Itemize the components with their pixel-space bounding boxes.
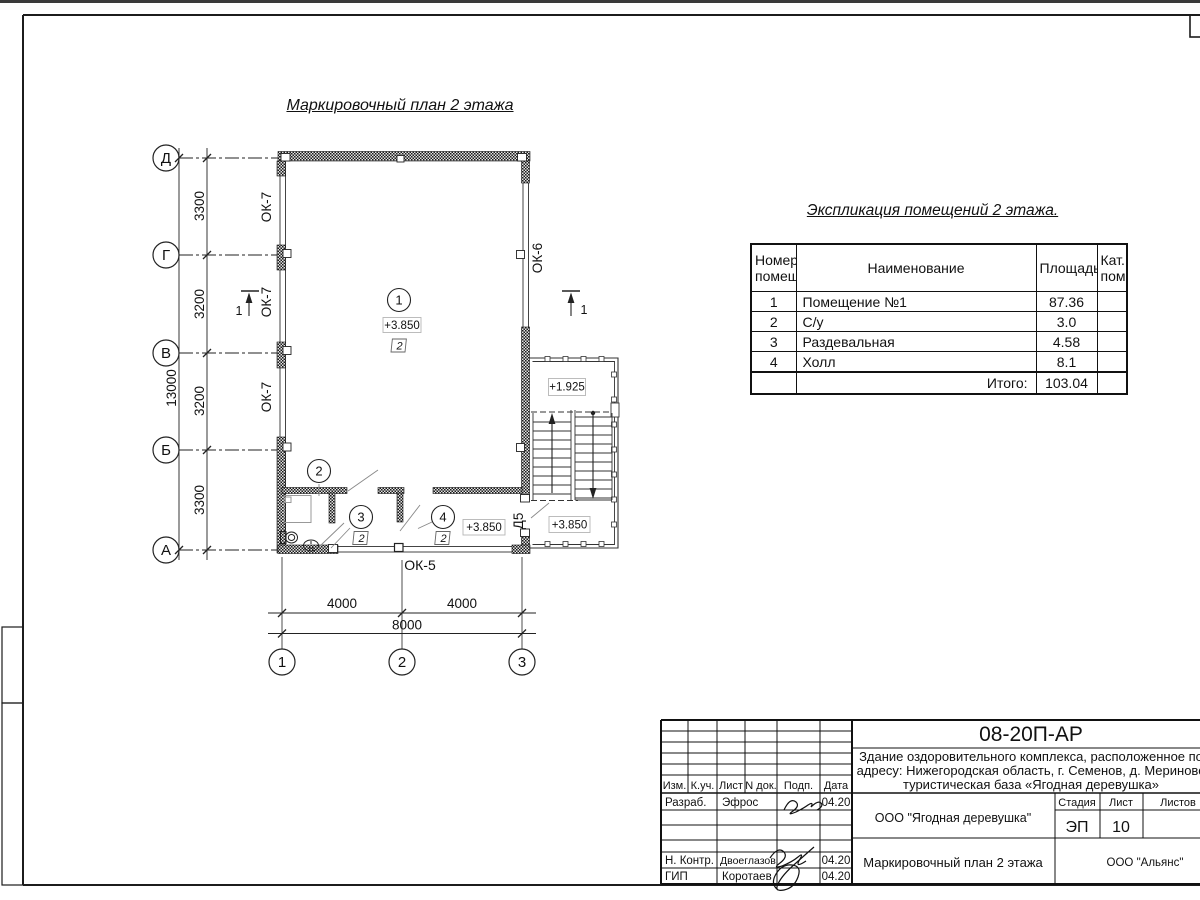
svg-text:3300: 3300 — [192, 191, 207, 221]
section-mark-label: 1 — [581, 303, 588, 317]
section-mark-label: 1 — [236, 304, 243, 318]
svg-text:Б: Б — [161, 442, 171, 459]
room-number: 2 — [315, 464, 322, 479]
corner-stamp-box — [1190, 15, 1200, 37]
svg-text:Д: Д — [161, 150, 171, 167]
table-row: 4 Холл 8.1 — [751, 352, 1127, 373]
floor-plan: Д Г В Б А 3300 3200 3200 3300 13000 400 — [153, 145, 619, 675]
section-marks: 1 1 — [236, 291, 588, 318]
drawing-canvas: Д Г В Б А 3300 3200 3200 3300 13000 400 — [0, 0, 1200, 900]
stair-direction-arrows — [549, 411, 597, 499]
room-number: 4 — [439, 510, 446, 525]
table-row: 3 Раздевальная 4.58 — [751, 332, 1127, 352]
svg-text:Стадия: Стадия — [1058, 797, 1096, 809]
window-tag-ok7: ОК-7 — [259, 287, 274, 317]
revision-header-row: Изм. К.уч. Лист N док. Подп. Дата — [663, 780, 849, 792]
svg-text:Лист: Лист — [719, 780, 743, 792]
svg-text:Дата: Дата — [824, 780, 849, 792]
table-row: 2 С/у 3.0 — [751, 312, 1127, 332]
svg-text:4000: 4000 — [327, 596, 357, 611]
col-header-num: Номер помещ. — [751, 244, 796, 292]
total-row: Итого: 103.04 — [751, 372, 1127, 394]
project-description: Здание оздоровительного комплекса, распо… — [857, 749, 1200, 792]
svg-text:А: А — [161, 542, 171, 559]
svg-text:4000: 4000 — [447, 596, 477, 611]
category-value: 2 — [395, 341, 402, 353]
svg-text:Листов: Листов — [1160, 797, 1196, 809]
bathroom-fixtures — [281, 496, 319, 552]
svg-text:Здание оздоровительного компле: Здание оздоровительного комплекса, распо… — [859, 749, 1200, 764]
table-row: 1 Помещение №1 87.36 — [751, 292, 1127, 312]
stage-sheet-header: Стадия Лист Листов — [1058, 797, 1196, 809]
elevation-value: +1.925 — [549, 382, 585, 394]
category-value: 2 — [439, 533, 446, 545]
elevation-value: +3.850 — [552, 520, 588, 532]
elevation-value: +3.850 — [384, 320, 420, 332]
date: 04.20 — [822, 855, 851, 867]
svg-text:Изм.: Изм. — [663, 780, 687, 792]
col-header-cat: Кат. пом. — [1097, 244, 1127, 292]
svg-text:адресу: Нижегородская область,: адресу: Нижегородская область, г. Семено… — [857, 763, 1200, 778]
total-label: Итого: — [796, 372, 1036, 394]
door-tag-d5: Д5 — [511, 513, 526, 530]
drawing-title: Маркировочный план 2 этажа — [863, 855, 1043, 870]
role-label: Н. Контр. — [665, 855, 714, 867]
organization-name: ООО "Ягодная деревушка" — [875, 811, 1031, 825]
svg-text:N док.: N док. — [745, 780, 776, 792]
window-tag-ok7: ОК-7 — [259, 382, 274, 412]
walls — [277, 152, 530, 554]
room-number: 3 — [357, 510, 364, 525]
sheet-number: 10 — [1112, 819, 1130, 836]
window-tag-ok5: ОК-5 — [404, 557, 436, 573]
svg-text:3200: 3200 — [192, 386, 207, 416]
svg-text:3200: 3200 — [192, 289, 207, 319]
svg-text:1: 1 — [278, 654, 286, 671]
svg-text:2: 2 — [398, 654, 406, 671]
window-tag-ok7: ОК-7 — [259, 192, 274, 222]
handwritten-signatures — [770, 801, 822, 891]
category-value: 2 — [357, 533, 364, 545]
col-header-name: Наименование — [796, 244, 1036, 292]
title-block: 08-20П-АР Здание оздоровительного компле… — [661, 720, 1200, 890]
svg-text:Лист: Лист — [1109, 797, 1133, 809]
stair-treads — [533, 410, 612, 500]
axis-labels-bottom: 1 2 3 — [278, 654, 526, 671]
svg-text:3300: 3300 — [192, 485, 207, 515]
drawing-sheet: { "sheet": { "plan_title": "Маркировочны… — [0, 0, 1200, 900]
window-tag-ok6: ОК-6 — [530, 243, 545, 273]
svg-text:Г: Г — [162, 247, 170, 264]
svg-text:В: В — [161, 345, 171, 362]
person-name: Коротаев — [722, 871, 772, 883]
date: 04.20 — [822, 871, 851, 883]
date: 04.20 — [822, 797, 851, 809]
total-area: 103.04 — [1036, 372, 1097, 394]
person-name: Эфрос — [722, 797, 759, 809]
explication-table: Номер помещ. Наименование Площадь Кат. п… — [750, 243, 1128, 395]
svg-text:К.уч.: К.уч. — [691, 780, 715, 792]
doc-number: 08-20П-АР — [979, 723, 1083, 746]
svg-text:туристическая база «Ягодная де: туристическая база «Ягодная деревушка» — [903, 777, 1159, 792]
role-label: Разраб. — [665, 797, 706, 809]
role-label: ГИП — [665, 871, 688, 883]
svg-text:8000: 8000 — [392, 618, 422, 633]
axis-labels-left: Д Г В Б А — [161, 150, 171, 559]
room-number: 1 — [395, 293, 402, 308]
svg-text:Подп.: Подп. — [784, 780, 813, 792]
dimension-lines-bottom — [268, 557, 536, 649]
stage-value: ЭП — [1066, 819, 1089, 836]
col-header-area: Площадь — [1036, 244, 1097, 292]
svg-text:13000: 13000 — [164, 369, 179, 407]
shower-tray — [284, 496, 311, 523]
person-name: Двоеглазов — [720, 855, 776, 867]
elevation-value: +3.850 — [466, 522, 502, 534]
company-name: ООО "Альянс" — [1107, 857, 1184, 869]
svg-text:3: 3 — [518, 654, 526, 671]
elevation-marks: +3.850 +3.850 +3.850 +1.925 — [383, 318, 590, 536]
explication-header-row: Номер помещ. Наименование Площадь Кат. п… — [751, 244, 1127, 292]
